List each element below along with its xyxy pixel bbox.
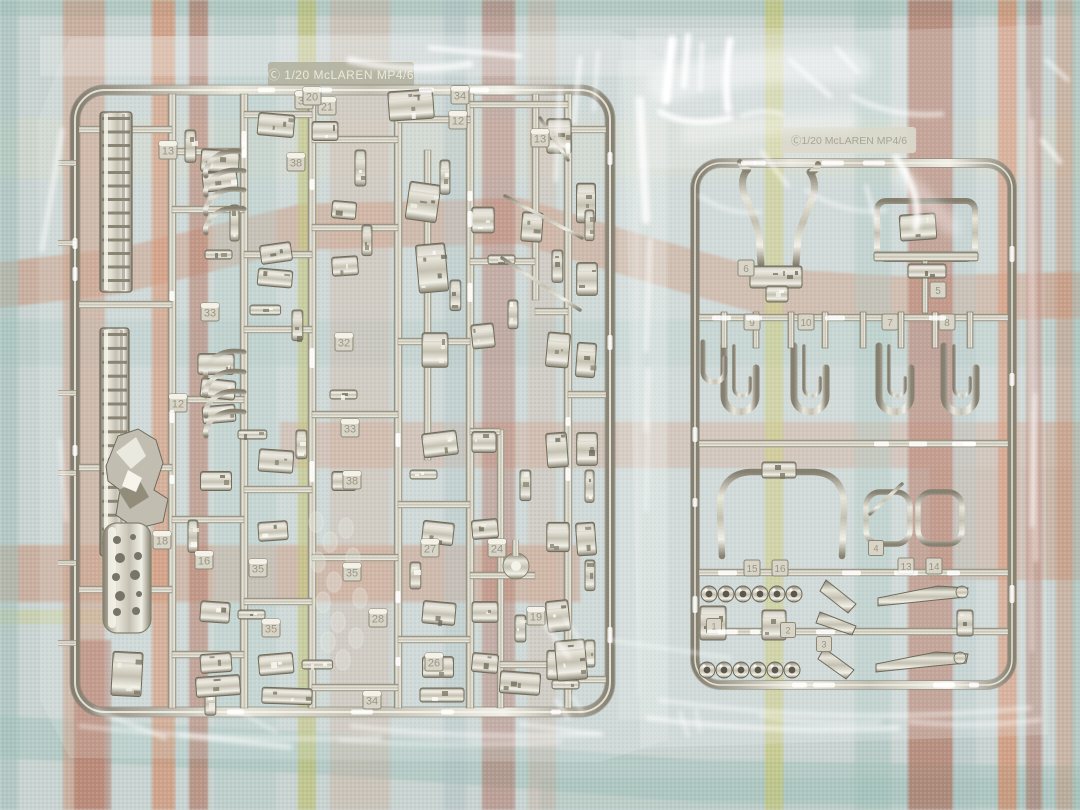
svg-text:18: 18 [156,536,168,548]
svg-text:35: 35 [346,568,358,580]
svg-text:15: 15 [746,564,758,575]
svg-text:7: 7 [887,318,893,329]
svg-text:38: 38 [290,158,302,170]
svg-text:3: 3 [821,640,826,650]
svg-text:16: 16 [198,556,210,568]
svg-text:2: 2 [785,626,790,636]
svg-text:32: 32 [338,338,350,350]
svg-text:12: 12 [172,399,184,411]
svg-text:5: 5 [935,286,941,297]
svg-text:6: 6 [743,264,749,275]
svg-text:13: 13 [534,134,546,146]
svg-text:Ⓒ1/20 McLAREN MP4/6: Ⓒ1/20 McLAREN MP4/6 [791,135,907,147]
svg-text:34: 34 [454,91,466,103]
svg-text:38: 38 [346,476,358,488]
svg-text:26: 26 [428,658,440,670]
svg-text:28: 28 [372,614,384,626]
svg-text:34: 34 [366,696,378,708]
svg-text:19: 19 [530,612,542,624]
svg-text:21: 21 [321,102,333,114]
svg-text:33: 33 [204,308,216,320]
svg-text:13: 13 [162,146,174,158]
svg-text:14: 14 [928,562,940,573]
svg-text:35: 35 [265,624,277,636]
svg-text:16: 16 [774,564,786,575]
svg-text:12: 12 [452,116,464,128]
svg-text:20: 20 [306,92,318,104]
svg-text:27: 27 [424,544,436,556]
svg-text:4: 4 [873,544,878,554]
svg-text:35: 35 [252,564,264,576]
svg-text:33: 33 [344,424,356,436]
svg-text:10: 10 [800,318,812,329]
svg-text:24: 24 [491,544,503,556]
